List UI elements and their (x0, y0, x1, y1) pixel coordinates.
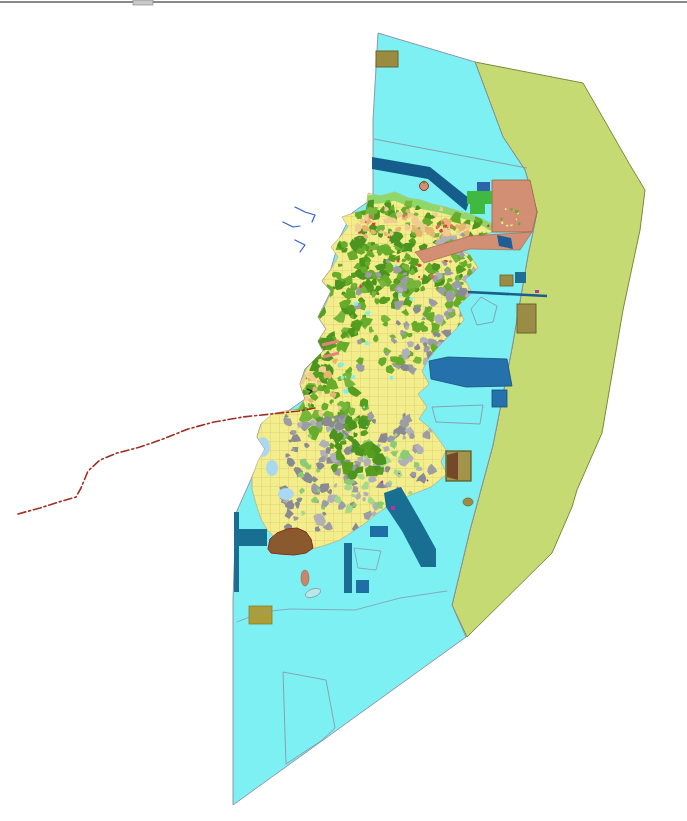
midwest-forest-blob (309, 347, 319, 355)
pier-blue-rect-ne[interactable] (477, 182, 490, 191)
stream-3 (295, 240, 305, 252)
midwest-forest-blob (300, 328, 304, 332)
magenta-dot-se (391, 506, 395, 510)
north-forest-blob (350, 205, 356, 210)
t-pier-vertical[interactable] (234, 512, 239, 592)
midwest-forest-blob (306, 334, 313, 343)
magenta-dot-e (535, 290, 539, 293)
window-top-border (0, 1, 687, 3)
teal-square-east[interactable] (515, 272, 526, 283)
midwest-forest-blob (292, 286, 305, 298)
reclaim-green-rect[interactable] (467, 191, 492, 204)
khaki-rect-east[interactable] (517, 304, 536, 333)
pier-square-south[interactable] (356, 580, 369, 593)
midwest-forest-blob (309, 311, 314, 319)
midwest-forest-blob (297, 353, 311, 364)
stream-1 (295, 207, 315, 222)
midwest-forest-blob (310, 291, 313, 296)
lagoon-2 (266, 460, 278, 476)
midwest-forest-blob (305, 329, 316, 339)
olive-blob-se (463, 498, 473, 506)
midwest-forest-blob (295, 331, 302, 339)
midwest-forest-blob (297, 306, 312, 318)
midwest-forest-blob (303, 332, 309, 337)
stream-2 (283, 222, 300, 227)
map-viewport[interactable] (0, 0, 687, 821)
west-soil-blob (299, 371, 303, 376)
midwest-forest-blob (301, 314, 311, 326)
facility-square-brown-half (447, 452, 458, 480)
splitter-handle[interactable] (133, 0, 153, 5)
harbor-small-rect[interactable] (492, 390, 507, 407)
midwest-forest-blob (304, 326, 310, 330)
khaki-square-top[interactable] (376, 51, 398, 67)
pier-rect-se[interactable] (370, 526, 388, 537)
reclaim-green-rect-2[interactable] (470, 204, 485, 214)
midwest-forest-blob (309, 339, 318, 349)
t-pier-horizontal[interactable] (237, 529, 267, 546)
midwest-forest-blob (308, 349, 323, 359)
khaki-rect-south[interactable] (249, 606, 272, 624)
lagoon-3 (278, 488, 294, 500)
lagoon-1 (256, 437, 270, 457)
sand-blob-south (301, 570, 309, 586)
pier-bar-south[interactable] (344, 543, 352, 593)
map-canvas[interactable] (0, 0, 687, 821)
midwest-forest-blob (297, 325, 305, 333)
khaki-square-east[interactable] (500, 275, 513, 286)
salmon-zone-block[interactable] (492, 180, 537, 232)
islet-north-green-dot (422, 180, 425, 183)
